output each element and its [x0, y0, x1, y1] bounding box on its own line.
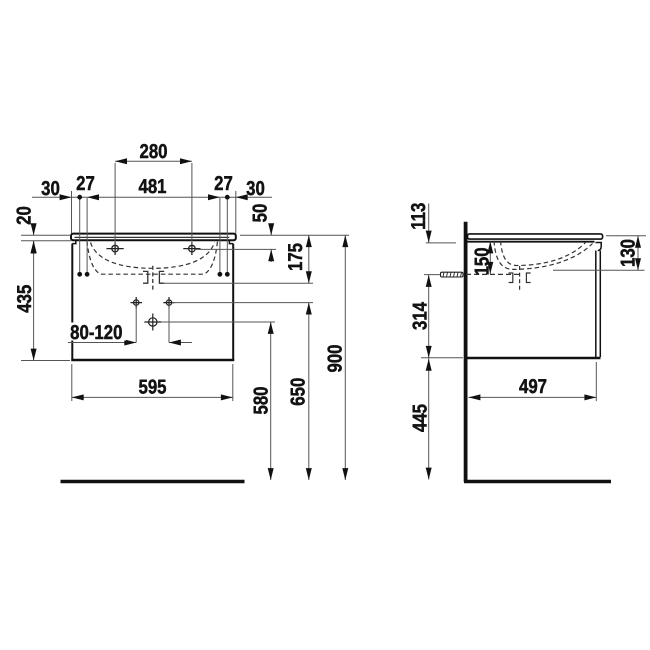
svg-text:30: 30 [41, 178, 60, 200]
svg-text:27: 27 [76, 173, 95, 195]
svg-text:580: 580 [251, 386, 273, 414]
svg-text:435: 435 [14, 285, 36, 313]
svg-text:113: 113 [408, 203, 430, 230]
svg-text:130: 130 [618, 239, 640, 267]
svg-text:30: 30 [246, 178, 265, 200]
svg-text:445: 445 [410, 404, 432, 432]
svg-text:150: 150 [472, 247, 494, 275]
svg-text:497: 497 [519, 376, 547, 398]
svg-text:314: 314 [410, 301, 432, 330]
svg-text:481: 481 [138, 176, 166, 198]
svg-text:50: 50 [250, 204, 272, 223]
svg-text:900: 900 [325, 344, 347, 372]
svg-text:20: 20 [14, 206, 36, 225]
svg-text:27: 27 [214, 173, 233, 195]
svg-text:175: 175 [285, 243, 307, 271]
svg-text:280: 280 [139, 141, 167, 163]
svg-text:80-120: 80-120 [70, 322, 122, 344]
svg-text:595: 595 [138, 377, 166, 399]
svg-text:650: 650 [288, 378, 310, 406]
